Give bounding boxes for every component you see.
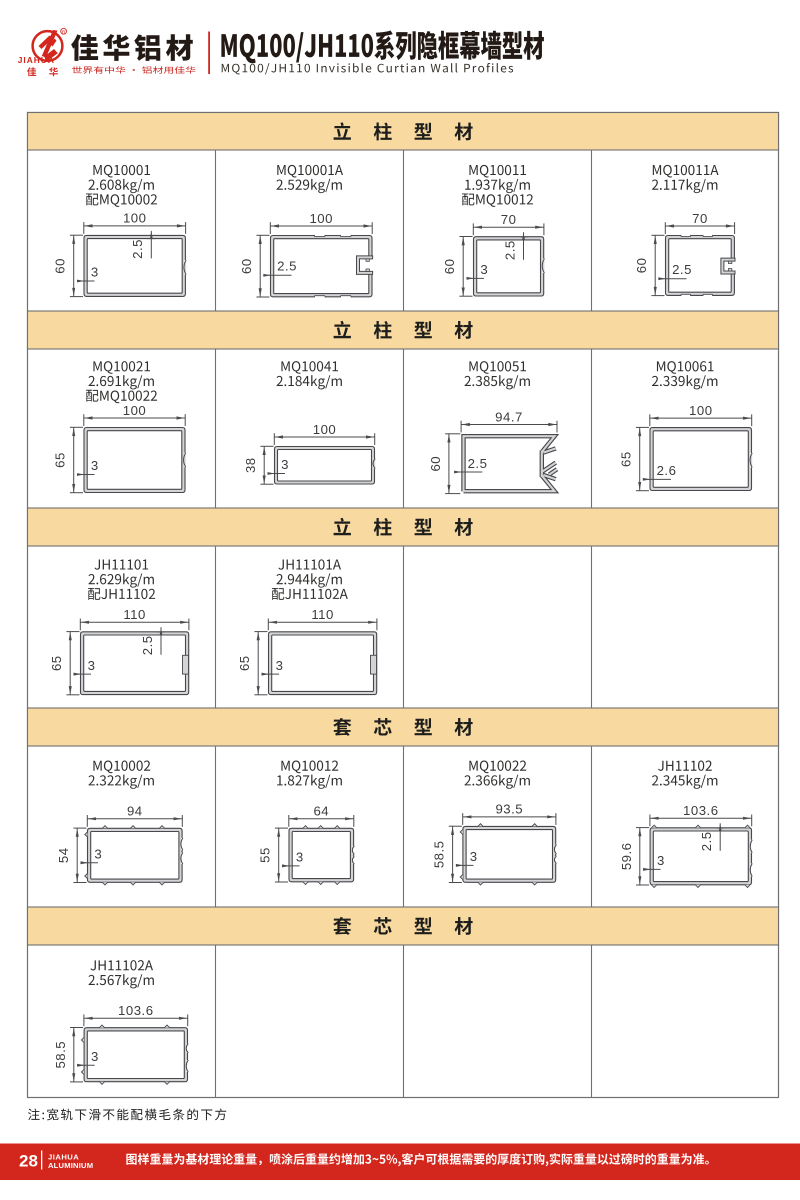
svg-text:70: 70 [692,211,708,226]
svg-text:60: 60 [428,456,443,472]
svg-text:70: 70 [501,212,517,227]
svg-text:59.6: 59.6 [619,842,634,870]
svg-text:65: 65 [619,451,634,467]
svg-text:94.7: 94.7 [495,409,523,424]
svg-text:103.6: 103.6 [683,803,719,818]
svg-text:100: 100 [313,422,337,437]
svg-text:38: 38 [243,457,258,473]
svg-text:54: 54 [56,847,71,863]
svg-text:3: 3 [91,265,99,280]
svg-text:3: 3 [91,1049,99,1064]
svg-text:2.5: 2.5 [502,240,517,260]
svg-text:100: 100 [123,403,147,418]
svg-text:60: 60 [442,259,457,275]
svg-text:3: 3 [276,658,284,673]
svg-text:3: 3 [91,458,99,473]
svg-text:55: 55 [258,847,273,863]
svg-text:100: 100 [123,211,147,226]
svg-text:3: 3 [480,262,488,277]
svg-text:3: 3 [470,849,478,864]
svg-text:60: 60 [53,258,68,274]
svg-text:65: 65 [237,655,252,671]
svg-text:110: 110 [311,607,334,622]
svg-text:JIAHUA: JIAHUA [18,55,55,65]
svg-text:2.6: 2.6 [657,463,677,478]
svg-text:3: 3 [657,853,665,868]
svg-text:2.5: 2.5 [140,635,155,655]
svg-text:R: R [62,29,66,35]
svg-text:2.5: 2.5 [699,831,714,851]
svg-text:2.5: 2.5 [277,259,297,274]
svg-text:58.5: 58.5 [53,1041,68,1069]
svg-text:65: 65 [53,452,68,468]
svg-text:ALUMINIUM: ALUMINIUM [48,1161,93,1170]
svg-text:60: 60 [239,258,254,274]
svg-text:3: 3 [281,457,289,472]
svg-text:28: 28 [19,1152,38,1171]
svg-text:100: 100 [309,211,333,226]
svg-text:3: 3 [88,658,96,673]
svg-text:2.5: 2.5 [130,239,145,259]
svg-text:2.5: 2.5 [672,262,692,277]
svg-text:60: 60 [634,258,649,274]
svg-text:93.5: 93.5 [495,802,523,817]
svg-text:100: 100 [689,403,713,418]
svg-text:2.5: 2.5 [468,456,488,471]
svg-text:65: 65 [49,655,64,671]
svg-text:3: 3 [94,847,102,862]
svg-text:64: 64 [313,804,329,819]
svg-text:94: 94 [127,804,143,819]
svg-text:58.5: 58.5 [432,840,447,868]
svg-text:3: 3 [296,850,304,865]
svg-text:103.6: 103.6 [118,1003,154,1018]
svg-text:110: 110 [123,607,146,622]
